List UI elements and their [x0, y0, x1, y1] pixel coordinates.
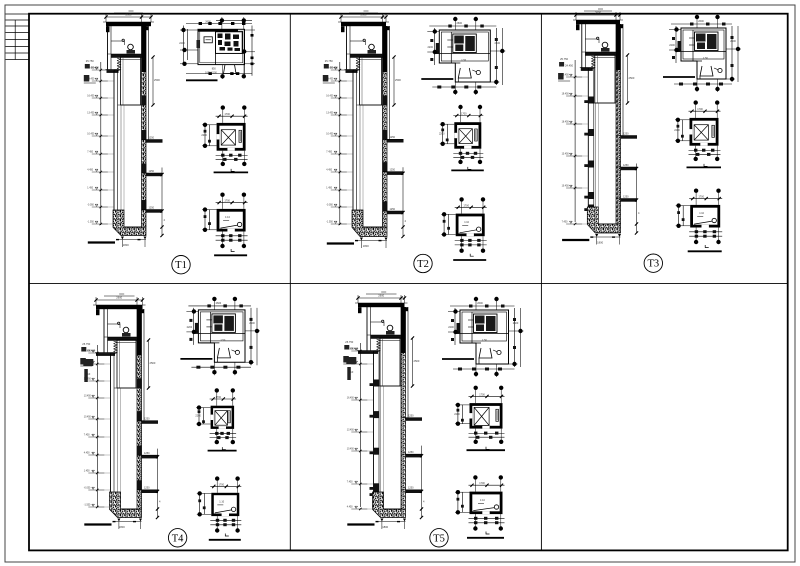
svg-text:2600: 2600: [513, 322, 519, 325]
svg-text:4: 4: [159, 499, 161, 503]
svg-text:2600: 2600: [249, 322, 255, 325]
svg-text:1700: 1700: [698, 196, 704, 199]
svg-text:-0.050: -0.050: [326, 204, 333, 206]
svg-text:1:10: 1:10: [480, 499, 485, 502]
svg-text:25.750: 25.750: [325, 59, 333, 63]
svg-text:19.450: 19.450: [562, 93, 570, 95]
svg-text:4.450: 4.450: [84, 452, 90, 454]
svg-text:4.450: 4.450: [326, 169, 332, 171]
svg-text:2500: 2500: [150, 361, 156, 365]
svg-text:1700: 1700: [224, 200, 230, 203]
svg-text:1250: 1250: [144, 417, 150, 420]
svg-text:4.450: 4.450: [347, 506, 353, 508]
svg-text:-0.050: -0.050: [84, 487, 91, 489]
svg-text:1250: 1250: [623, 195, 629, 198]
svg-text:2600: 2600: [216, 302, 222, 305]
svg-text:1250: 1250: [149, 136, 155, 139]
svg-text:1700: 1700: [219, 483, 225, 486]
svg-text:24.450: 24.450: [565, 64, 573, 68]
svg-text:7.450: 7.450: [347, 481, 353, 483]
svg-text:2600: 2600: [495, 42, 501, 45]
svg-text:2600: 2600: [205, 21, 211, 24]
svg-text:2600: 2600: [730, 40, 736, 43]
svg-text:10.450: 10.450: [347, 448, 355, 450]
svg-text:1700: 1700: [479, 393, 485, 396]
svg-text:10.450: 10.450: [326, 133, 334, 135]
svg-text:1:10: 1:10: [699, 212, 704, 215]
svg-text:1700: 1700: [216, 396, 222, 399]
svg-text:16.450: 16.450: [87, 95, 95, 97]
svg-text:1.450: 1.450: [84, 470, 90, 472]
svg-text:T1: T1: [175, 260, 187, 271]
svg-text:T2: T2: [417, 259, 429, 270]
svg-text:4: 4: [405, 219, 407, 223]
svg-text:1700: 1700: [224, 113, 230, 116]
svg-text:1250: 1250: [623, 164, 629, 167]
svg-text:1700: 1700: [697, 108, 703, 111]
svg-text:2600: 2600: [457, 22, 463, 25]
svg-text:24.450: 24.450: [330, 66, 338, 70]
svg-text:1250: 1250: [149, 206, 155, 209]
svg-text:1250: 1250: [408, 414, 414, 417]
svg-text:-1.550: -1.550: [326, 221, 333, 223]
svg-text:1:10: 1:10: [225, 216, 230, 219]
svg-text:7.450: 7.450: [562, 221, 568, 223]
svg-text:-1.550: -1.550: [84, 504, 91, 506]
svg-text:1800: 1800: [382, 525, 388, 529]
svg-text:7.450: 7.450: [326, 151, 332, 153]
svg-text:7.450: 7.450: [87, 151, 93, 153]
svg-text:1250: 1250: [623, 132, 629, 135]
svg-text:2600: 2600: [698, 20, 704, 23]
svg-text:2600: 2600: [477, 302, 483, 305]
svg-text:2200: 2200: [448, 326, 454, 329]
svg-text:13.450: 13.450: [326, 112, 334, 114]
svg-text:2200: 2200: [674, 129, 680, 132]
svg-text:1250: 1250: [390, 208, 396, 211]
svg-text:1:10: 1:10: [464, 221, 469, 224]
svg-text:25.750: 25.750: [560, 57, 568, 61]
svg-text:1.450: 1.450: [87, 187, 93, 189]
svg-text:13.450: 13.450: [84, 395, 92, 397]
svg-text:T5: T5: [433, 533, 445, 544]
svg-text:1250: 1250: [149, 170, 155, 173]
svg-text:2200: 2200: [428, 46, 434, 49]
svg-text:2500: 2500: [154, 78, 160, 82]
svg-text:2200: 2200: [179, 42, 185, 45]
svg-text:1.450: 1.450: [326, 187, 332, 189]
svg-text:1250: 1250: [390, 169, 396, 172]
svg-text:7.450: 7.450: [84, 434, 90, 436]
svg-text:T3: T3: [647, 259, 659, 270]
svg-text:24.450: 24.450: [350, 347, 358, 351]
svg-text:1:50: 1:50: [703, 57, 708, 60]
svg-text:2500: 2500: [414, 359, 420, 363]
svg-text:1:50: 1:50: [461, 59, 466, 62]
svg-text:2200: 2200: [454, 413, 460, 416]
svg-text:4: 4: [638, 211, 640, 215]
svg-text:1250: 1250: [144, 452, 150, 455]
svg-text:1250: 1250: [144, 487, 150, 490]
svg-text:2200: 2200: [439, 133, 445, 136]
svg-text:1F: 1F: [350, 370, 353, 374]
svg-text:2200: 2200: [187, 326, 193, 329]
svg-text:-0.050: -0.050: [87, 204, 94, 206]
svg-text:4: 4: [423, 499, 425, 503]
svg-text:2500: 2500: [629, 76, 635, 80]
svg-text:10.450: 10.450: [84, 416, 92, 418]
svg-text:1800: 1800: [119, 525, 125, 529]
svg-text:1250: 1250: [408, 451, 414, 454]
svg-text:25.750: 25.750: [86, 59, 94, 63]
svg-text:1800: 1800: [363, 244, 369, 248]
svg-text:4: 4: [164, 218, 166, 222]
svg-text:1:50: 1:50: [482, 339, 487, 342]
svg-text:16.450: 16.450: [326, 95, 334, 97]
svg-text:25.750: 25.750: [82, 342, 90, 346]
svg-text:1700: 1700: [479, 482, 485, 485]
svg-text:13.450: 13.450: [87, 112, 95, 114]
svg-text:1F: 1F: [87, 372, 90, 376]
svg-text:850: 850: [212, 67, 217, 70]
svg-text:25.750: 25.750: [345, 340, 353, 344]
svg-text:1700: 1700: [461, 113, 467, 116]
svg-text:2500: 2500: [395, 78, 401, 82]
svg-text:10.450: 10.450: [562, 185, 570, 187]
svg-text:16.450: 16.450: [347, 397, 355, 399]
svg-text:2200: 2200: [195, 414, 201, 417]
svg-text:16.450: 16.450: [562, 121, 570, 123]
svg-text:T4: T4: [172, 533, 184, 544]
svg-text:1250: 1250: [408, 487, 414, 490]
svg-text:24.450: 24.450: [91, 66, 99, 70]
svg-text:-1.550: -1.550: [87, 221, 94, 223]
svg-text:2200: 2200: [669, 44, 675, 47]
svg-text:1800: 1800: [123, 243, 129, 247]
svg-text:1:10: 1:10: [219, 500, 224, 503]
svg-text:1250: 1250: [390, 136, 396, 139]
svg-text:10.450: 10.450: [87, 133, 95, 135]
svg-text:13.450: 13.450: [347, 429, 355, 431]
svg-text:1700: 1700: [463, 204, 469, 207]
svg-text:24.450: 24.450: [87, 349, 95, 353]
svg-text:1:50: 1:50: [220, 339, 225, 342]
svg-text:13.450: 13.450: [562, 153, 570, 155]
svg-text:4.450: 4.450: [87, 169, 93, 171]
svg-text:2200: 2200: [201, 134, 207, 137]
svg-text:1800: 1800: [597, 241, 603, 245]
